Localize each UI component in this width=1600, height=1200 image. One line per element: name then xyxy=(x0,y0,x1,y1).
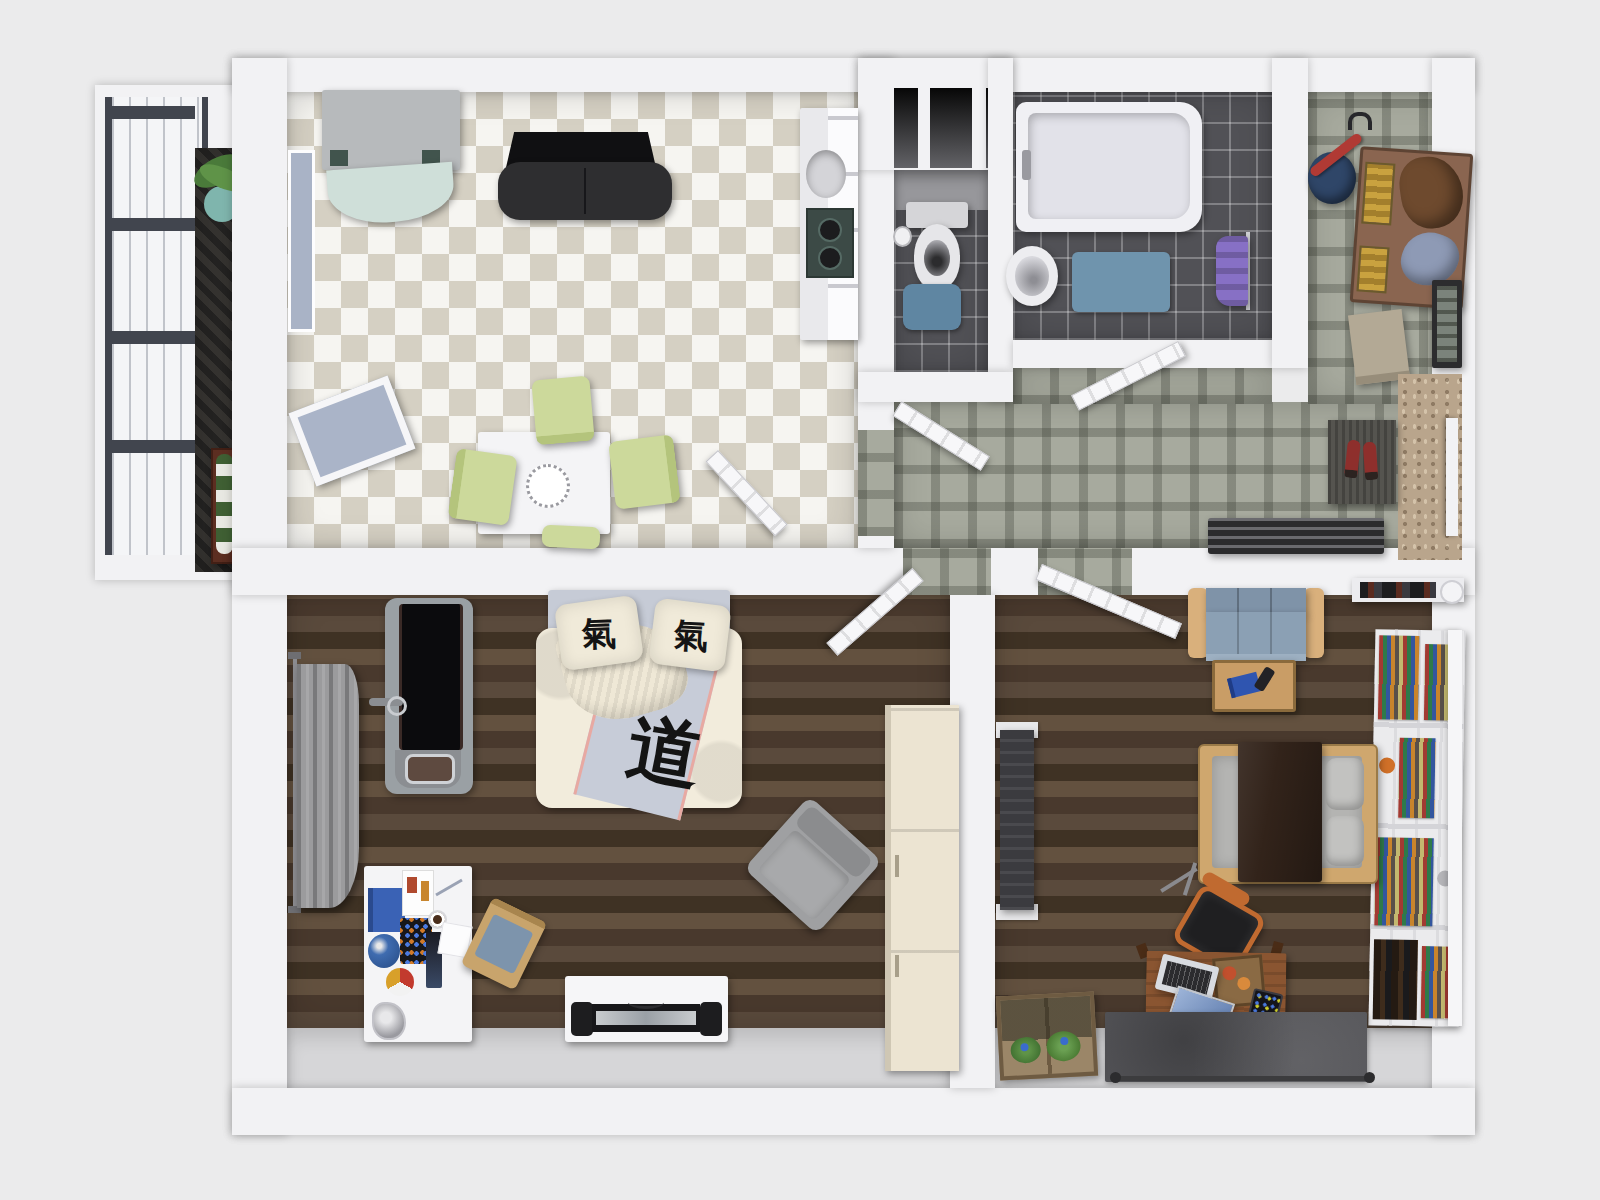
toilet-seat xyxy=(914,224,960,290)
desk-lamp-icon xyxy=(372,1002,406,1040)
tv-speaker-icon xyxy=(571,1002,593,1036)
dark-items-icon xyxy=(1373,939,1418,1020)
umbrella-handle-icon xyxy=(1348,112,1372,130)
wicker-basket-icon xyxy=(1361,162,1395,226)
toilet-bowl-icon xyxy=(924,240,950,276)
curtain-rod-finial xyxy=(1364,1072,1375,1083)
fruit-icon xyxy=(1237,976,1251,990)
shoe-icon xyxy=(1344,439,1361,478)
bathroom-sink xyxy=(1006,246,1058,306)
duct-shaft xyxy=(930,88,972,168)
shoe-rack xyxy=(1208,518,1384,554)
plate-icon xyxy=(526,464,570,508)
wc-bottom-wall xyxy=(858,372,1013,402)
treadmill xyxy=(385,598,473,794)
wardrobe-handle-icon xyxy=(895,855,899,877)
tv-panel xyxy=(592,1004,700,1032)
bathtub-basin xyxy=(1028,113,1190,219)
curtain-rod-finial xyxy=(288,652,301,659)
balcony-window-bar xyxy=(105,440,195,453)
sofa-arm-wood xyxy=(1304,588,1324,658)
pillow-kanji-glyph: 氣 xyxy=(673,617,709,653)
wall-radiator xyxy=(1000,730,1034,910)
balcony-window-glass xyxy=(105,97,208,555)
duvet-kanji-glyph: 道 xyxy=(622,708,708,794)
toilet-paper-icon xyxy=(893,226,912,247)
books-row xyxy=(1378,635,1419,720)
toy-ball-icon xyxy=(386,968,414,996)
sofa-back xyxy=(1206,588,1306,614)
bedroom-desk xyxy=(364,866,472,1042)
burner-icon xyxy=(818,218,842,242)
magazine-icon xyxy=(402,870,434,916)
balcony-window-bar xyxy=(105,218,195,231)
outer-wall-left xyxy=(232,58,287,1135)
planter-box xyxy=(996,991,1098,1080)
treadmill-ring-icon xyxy=(387,696,407,716)
pillow-kanji-glyph: 氣 xyxy=(581,615,616,650)
bed-pillow-left: 氣 xyxy=(554,595,644,672)
dining-chair xyxy=(608,434,681,509)
books-row xyxy=(1398,738,1435,819)
bedroom-curtain xyxy=(297,664,359,908)
living-rug xyxy=(1105,1012,1367,1082)
wall-shelf xyxy=(1352,578,1464,602)
entry-mirror xyxy=(1432,280,1462,368)
bathroom-right-wall xyxy=(1272,58,1308,368)
bathtub xyxy=(1016,102,1202,232)
fruit-icon xyxy=(1222,966,1237,981)
towel-purple xyxy=(1216,236,1248,306)
sofa-arm-wood xyxy=(1188,588,1208,658)
bottles-icon xyxy=(1360,582,1436,598)
dining-chair xyxy=(531,376,594,446)
bookshelf-side-face xyxy=(1448,630,1462,1026)
duct-shaft xyxy=(894,88,918,168)
kitchen-sink-icon xyxy=(806,150,846,198)
sink-bowl-icon xyxy=(1015,256,1049,296)
unit-seam xyxy=(584,168,586,214)
dining-chair xyxy=(541,524,600,549)
shoe-icon xyxy=(1363,442,1379,481)
dining-chair xyxy=(447,448,517,526)
kitchen-black-unit xyxy=(498,162,672,220)
globe-icon xyxy=(368,934,400,968)
outer-wall-bottom xyxy=(232,1088,1475,1135)
treadmill-belt xyxy=(399,604,463,750)
tv-screen xyxy=(596,1011,696,1025)
burner-icon xyxy=(818,246,842,270)
futon-blanket xyxy=(1238,742,1322,882)
wc-mat xyxy=(903,284,961,330)
kitchen-window xyxy=(288,150,315,332)
doormat xyxy=(1328,420,1396,504)
orange-ball-icon xyxy=(1379,757,1395,773)
stove-icon xyxy=(806,208,854,278)
coffee-table xyxy=(1212,660,1296,712)
floor-plan-render: 道 氣 氣 xyxy=(0,0,1600,1200)
wicker-basket-icon xyxy=(1356,245,1389,293)
futon-pillow xyxy=(1326,816,1364,866)
entrance-door-edge xyxy=(1446,418,1458,536)
paper-roll-icon xyxy=(1440,580,1464,604)
tv-stand-icon xyxy=(628,996,664,1009)
tv-bench xyxy=(565,976,728,1042)
chair-cushion xyxy=(474,914,534,975)
bathtub-faucet-icon xyxy=(1022,150,1031,180)
coat-brown-icon xyxy=(1396,152,1467,232)
mirror-glass xyxy=(1437,286,1457,362)
curtain-rod-icon xyxy=(1118,1076,1368,1081)
futon-pillow xyxy=(1326,758,1364,810)
wardrobe-handle-icon xyxy=(895,955,899,977)
balcony-window-bar xyxy=(105,331,195,344)
phone-icon xyxy=(1253,666,1275,692)
flower-cluster-icon xyxy=(216,454,233,554)
bed-pillow-right: 氣 xyxy=(648,598,731,673)
pen-icon xyxy=(435,879,462,897)
plant-icon xyxy=(1046,1030,1082,1062)
curtain-rod-finial xyxy=(1110,1072,1121,1083)
wardrobe xyxy=(885,705,959,1071)
bath-mat xyxy=(1072,252,1170,312)
kitchen-doorway-gap xyxy=(858,430,894,536)
fridge-hinge-icon xyxy=(330,150,348,166)
wc-right-wall xyxy=(988,58,1013,402)
kitchen-counter xyxy=(800,108,858,340)
tv-speaker-icon xyxy=(700,1002,722,1036)
entry-niche-cork-wall xyxy=(1398,374,1462,560)
sofa-seat xyxy=(1206,612,1306,661)
balcony-window-bar xyxy=(105,106,195,119)
books-row xyxy=(1374,837,1434,926)
treadmill-pad xyxy=(405,754,455,784)
